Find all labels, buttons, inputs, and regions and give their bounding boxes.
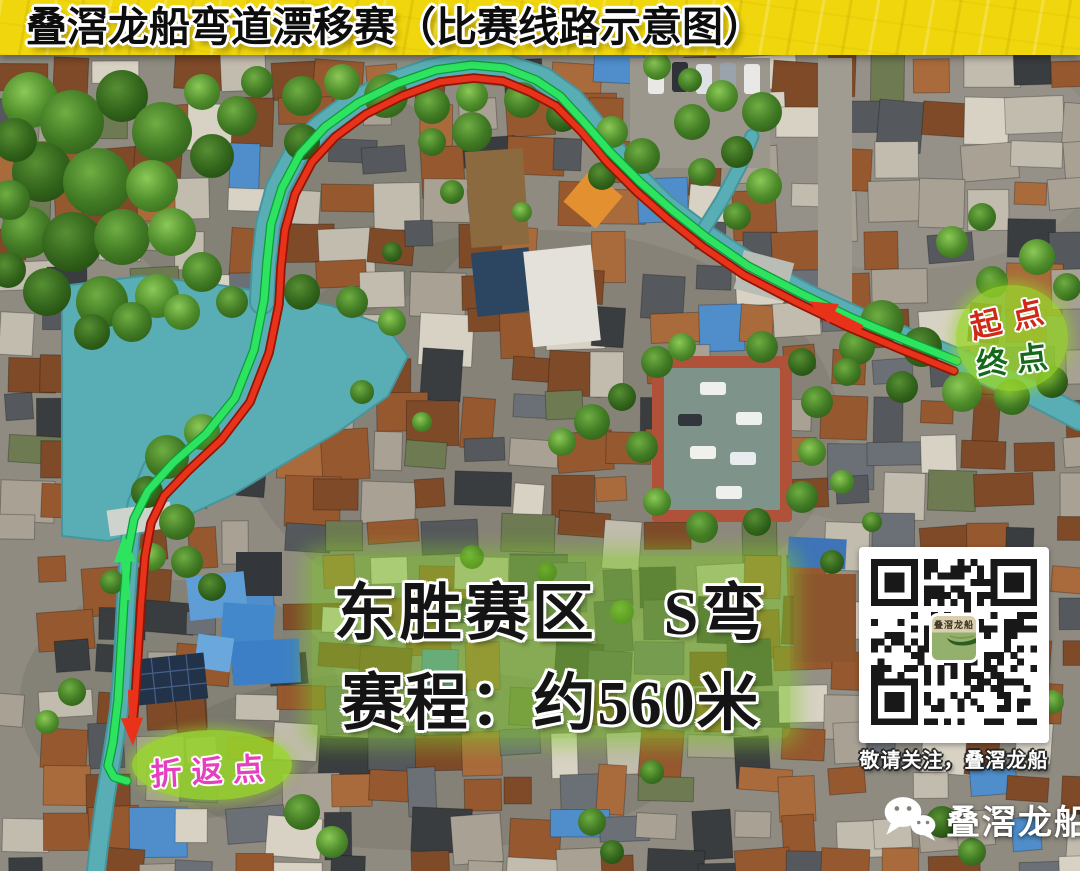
wechat-account-name: 叠滘龙船 — [946, 795, 1080, 844]
turnaround-badge: 折返点 — [132, 730, 292, 800]
course-info-card: 东胜赛区 S弯 赛程：约560米 — [312, 556, 790, 738]
finish-label: 终点 — [974, 330, 1059, 384]
course-distance-label: 赛程：约560米 — [312, 652, 790, 742]
title-banner: 叠滘龙船弯道漂移赛（比赛线路示意图） — [0, 0, 1080, 55]
turnaround-label: 折返点 — [131, 742, 293, 795]
qr-caption: 敬请关注，叠滘龙船 — [850, 744, 1058, 773]
poster-title: 叠滘龙船弯道漂移赛（比赛线路示意图） — [26, 0, 764, 54]
qr-code: 叠滘龙船 — [859, 547, 1049, 743]
qr-center-logo: 叠滘龙船 — [929, 613, 979, 663]
race-route-poster: 叠滘龙船弯道漂移赛（比赛线路示意图） 东胜赛区 S弯 赛程：约560米 起点 终… — [0, 0, 1080, 871]
wechat-icon — [882, 794, 938, 844]
boat-icon — [944, 628, 979, 648]
course-zone-label: 东胜赛区 S弯 — [312, 562, 790, 652]
start-finish-badge: 起点 终点 — [956, 285, 1068, 391]
wechat-footer: 叠滘龙船 — [882, 794, 1080, 844]
